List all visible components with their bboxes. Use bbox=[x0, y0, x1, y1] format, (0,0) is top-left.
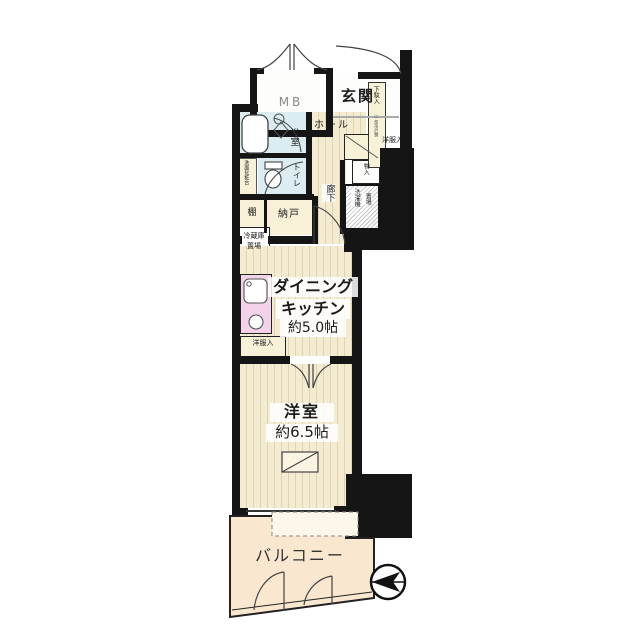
refrigerator-label-1: 冷蔵庫 bbox=[238, 232, 270, 242]
closet-hall-label: 洋服入 bbox=[382, 137, 403, 144]
storage-room-label: 納戸 bbox=[266, 208, 312, 222]
vanity-label: 洗面化粧台 bbox=[243, 160, 248, 185]
mb-label: MB bbox=[258, 94, 324, 110]
toilet-label: トイレ bbox=[292, 163, 300, 187]
closet-dk-label: 洋服入 bbox=[240, 339, 286, 349]
western-room-label-1: 洋室 bbox=[270, 403, 334, 422]
shelf-label: 棚 bbox=[239, 207, 265, 221]
washer-label-1: 洗濯機 bbox=[351, 189, 361, 207]
mb-double-doors bbox=[257, 44, 327, 70]
entrance-door-arc bbox=[336, 46, 401, 74]
hall-label: ホール bbox=[310, 120, 354, 133]
pillar bbox=[346, 474, 412, 538]
washer-space-box bbox=[344, 184, 380, 230]
balcony-label: バルコニー bbox=[250, 546, 350, 566]
balcony-door-arcs bbox=[254, 572, 332, 611]
floor-plan: MB 玄関 ホール 下駄入 （一部吊戸棚） 浴室 トイレ 洗面化粧台 棚 納戸 … bbox=[0, 0, 640, 640]
dk-label-3: 約5.0帖 bbox=[280, 319, 346, 337]
washer-label-2: 置場 bbox=[362, 193, 372, 205]
small-storage-label: 物入 bbox=[362, 163, 368, 175]
dk-label-2: キッチン bbox=[276, 299, 350, 319]
corridor-label: 廊下 bbox=[322, 184, 335, 202]
north-arrow-icon bbox=[371, 565, 406, 599]
refrigerator-label-2: 置場 bbox=[238, 242, 270, 252]
shoe-cabinet-note: （一部吊戸棚） bbox=[374, 112, 378, 140]
dk-label-1: ダイニング bbox=[268, 277, 358, 297]
bathroom-label: 浴室 bbox=[288, 128, 297, 146]
shoe-cabinet-label: 下駄入 bbox=[372, 86, 378, 104]
western-room-label-2: 約6.5帖 bbox=[266, 424, 338, 442]
